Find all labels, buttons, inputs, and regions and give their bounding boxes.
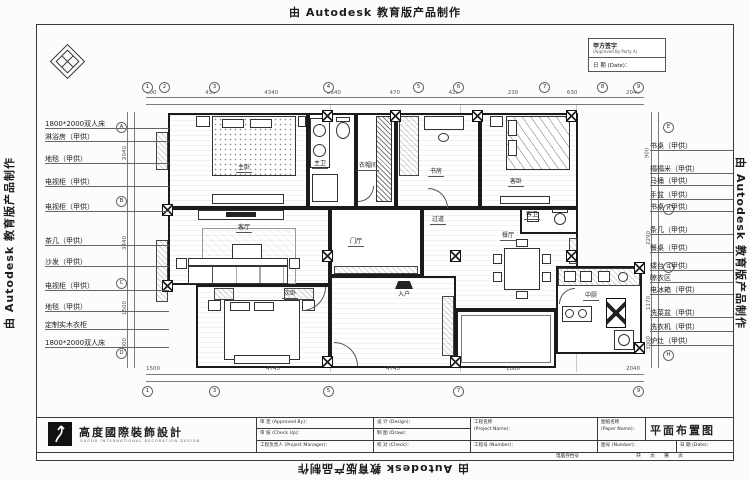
- nightstand: [208, 300, 221, 311]
- axis-bubble: E: [663, 122, 674, 133]
- toilet: [554, 213, 566, 225]
- chair: [493, 254, 502, 264]
- axis-bubble: 3: [209, 82, 220, 93]
- tb-draw: 制 图 (Draw)：: [377, 431, 409, 437]
- signature-box: 甲方签字 (Approved By Party A) 日 期 (Date)：: [588, 38, 666, 72]
- column-marker: [450, 250, 461, 262]
- callout-right: 洗衣机（甲供）: [650, 323, 733, 332]
- callout-left: 1800*2000双人床: [45, 120, 169, 129]
- chair: [542, 272, 551, 282]
- dim-chain-top: [146, 97, 644, 98]
- chair: [516, 291, 528, 299]
- tv-cabinet: [500, 196, 550, 204]
- callout-right: 条几（甲供）: [650, 226, 733, 235]
- room-label: 餐厅: [500, 232, 516, 241]
- titleblock-line: [676, 440, 677, 452]
- counter-unit: [598, 271, 610, 282]
- titleblock-line: [36, 417, 734, 418]
- column-marker: [634, 342, 645, 354]
- callout-left: 电视柜（甲供）: [45, 203, 169, 212]
- axis-bubble: 1: [142, 82, 153, 93]
- chair: [516, 239, 528, 247]
- side-table: [289, 258, 300, 269]
- tb-design: 设 计 (Design)：: [377, 420, 413, 426]
- room-label: 客卧: [508, 178, 524, 187]
- signature-date: 日 期 (Date)：: [593, 61, 630, 69]
- tb-proof: 校 对 (Check)：: [377, 443, 411, 449]
- company-name-en: GAODU INTERNATIONAL DECORATION DESIGN: [80, 439, 200, 443]
- burner: [565, 309, 574, 318]
- sink: [313, 144, 326, 157]
- callout-left: 地毯（甲供）: [45, 303, 169, 312]
- callout-left: 沙发（甲供）: [45, 258, 169, 267]
- room-label: 门厅: [348, 238, 364, 247]
- chair: [438, 133, 449, 142]
- column-marker: [390, 110, 401, 122]
- callout-right: 炉灶（甲供）: [650, 337, 733, 346]
- side-table: [176, 258, 187, 269]
- tb-pages: 共 页 第 页: [636, 454, 685, 460]
- callout-right: 手盆（甲供）: [650, 191, 733, 200]
- logo-stamp: [52, 46, 84, 78]
- axis-bubble: 7: [453, 386, 464, 397]
- tb-paper-no: 图号 (Number)：: [601, 443, 638, 449]
- dim-chain-bottom: [146, 381, 644, 382]
- callout-right: 洗菜盆（甲供）: [650, 309, 733, 318]
- callout-right: 马桶（甲供）: [650, 177, 733, 186]
- column-marker: [566, 250, 577, 262]
- tb-pm: 工程负责人 (Project Manager)：: [260, 443, 330, 449]
- washer-drum: [618, 334, 630, 346]
- dim-chain-top: [146, 104, 644, 105]
- room-label: 过道: [430, 216, 446, 225]
- dining-table: [504, 248, 540, 290]
- pillow: [508, 120, 517, 136]
- room-label: 次卧: [282, 290, 298, 299]
- dim-numbers-top: 500430 43402640 470420 230630 2040: [146, 90, 640, 96]
- counter-unit: [580, 271, 592, 282]
- titleblock-line: [373, 417, 374, 452]
- column-marker: [566, 110, 577, 122]
- bay-window: [156, 240, 168, 302]
- room-label: 中厨: [583, 292, 599, 301]
- titleblock-line: [36, 452, 734, 453]
- axis-bubble: 5: [413, 82, 424, 93]
- desk: [424, 116, 464, 130]
- company-name: 高度國際裝飾設計: [79, 424, 183, 440]
- titleblock-line: [470, 417, 471, 452]
- room-label: 客卫: [524, 211, 540, 220]
- callout-right: 榻榻米（甲供）: [650, 165, 733, 174]
- callout-left: 1800*2000双人床: [45, 339, 169, 348]
- counter-unit: [564, 271, 576, 282]
- company-logo: [48, 422, 72, 446]
- room-label: 书房: [428, 168, 444, 177]
- pillow: [230, 302, 250, 311]
- titleblock-line: [256, 428, 470, 429]
- tv-cabinet: [234, 355, 290, 364]
- coffee-table: [232, 244, 262, 259]
- bookshelf: [399, 116, 419, 176]
- tb-project-name: 工程名称: [474, 420, 492, 426]
- shower: [312, 174, 338, 202]
- toilet-tank: [336, 117, 350, 122]
- axis-bubble: D: [116, 348, 127, 359]
- burner: [578, 309, 587, 318]
- sofa-back: [188, 258, 288, 266]
- axis-bubble: 6: [453, 82, 464, 93]
- callout-right: 书桌（甲供）: [650, 142, 733, 151]
- watermark-left: 由 Autodesk 教育版产品制作: [1, 157, 17, 329]
- chair: [542, 254, 551, 264]
- wardrobe-shelves: [376, 116, 392, 202]
- titleblock-line: [645, 417, 646, 440]
- dim-number-right: 1170: [646, 296, 652, 310]
- axis-bubble: 8: [597, 82, 608, 93]
- callout-right: 餐桌（甲供）: [650, 244, 733, 253]
- room-balcony: [456, 310, 556, 368]
- sink: [313, 124, 326, 137]
- nightstand: [298, 116, 306, 127]
- pillow: [250, 119, 272, 128]
- callout-left: 电视柜（甲供）: [45, 178, 169, 187]
- column-marker: [322, 250, 333, 262]
- shoe-cabinet: [334, 266, 418, 274]
- dim-numbers-bottom: 15004745 47451080 2040: [146, 366, 640, 372]
- callout-right: 晾衣区: [650, 274, 733, 283]
- room-label: 入户: [396, 291, 412, 299]
- chair: [493, 272, 502, 282]
- watermark-right: 由 Autodesk 教育版产品制作: [733, 157, 749, 329]
- room-label: 客厅: [236, 224, 252, 233]
- axis-bubble: 9: [633, 386, 644, 397]
- tb-paper-name-en: (Paper Name)：: [601, 427, 637, 433]
- axis-bubble: 7: [539, 82, 550, 93]
- drawing-title: 平面布置图: [650, 422, 715, 438]
- callout-left: 茶几（甲供）: [45, 237, 169, 246]
- titleblock-line: [256, 440, 734, 441]
- fridge: [606, 298, 626, 328]
- tb-archive: 电脑存档号: [556, 454, 579, 460]
- nightstand: [490, 116, 503, 127]
- tb-check: 审 核 (Check Up)：: [260, 431, 302, 437]
- titleblock-line: [256, 417, 257, 452]
- drawing-sheet: 由 Autodesk 教育版产品制作 由 Autodesk 教育版产品制作 由 …: [0, 0, 750, 480]
- column-marker: [634, 262, 645, 274]
- callout-left: 定制实木衣柜: [45, 321, 169, 330]
- callout-right: 电冰箱（甲供）: [650, 286, 733, 295]
- tb-paper-name: 图纸名称: [601, 420, 619, 426]
- tb-date: 日 期 (Date)：: [680, 443, 711, 449]
- axis-bubble: 1: [142, 386, 153, 397]
- dim-chain-bottom: [146, 374, 644, 375]
- callout-left: 电视柜（甲供）: [45, 282, 169, 291]
- tb-approved: 审 定 (Approved By)：: [260, 420, 310, 426]
- axis-bubble: H: [663, 350, 674, 361]
- axis-bubble: 3: [209, 386, 220, 397]
- axis-bubble: 5: [323, 386, 334, 397]
- sofa: [188, 266, 288, 284]
- axis-bubble: 4: [323, 82, 334, 93]
- callout-left: 淋浴房（甲供）: [45, 133, 169, 142]
- callout-left: 地毯（甲供）: [45, 155, 169, 164]
- pillow: [254, 302, 274, 311]
- watermark-bottom: 由 Autodesk 教育版产品制作: [297, 461, 469, 477]
- column-marker: [472, 110, 483, 122]
- toilet: [336, 122, 350, 139]
- kitchen-sink: [618, 272, 628, 282]
- callout-right: 矮台（甲供）: [650, 262, 733, 271]
- tv-cabinet: [212, 194, 284, 204]
- room-label: 衣帽间: [357, 162, 379, 171]
- tv: [226, 212, 256, 217]
- tb-project-no: 工程号 (Number)：: [474, 443, 516, 449]
- callout-right: 书桌（甲供）: [650, 203, 733, 212]
- tall-cabinet: [442, 296, 454, 356]
- column-marker: [322, 110, 333, 122]
- axis-bubble: 2: [159, 82, 170, 93]
- signature-label-en: (Approved By Party A): [593, 49, 637, 54]
- pillow: [222, 119, 244, 128]
- titleblock-line: [597, 417, 598, 452]
- watermark-top: 由 Autodesk 教育版产品制作: [289, 4, 461, 20]
- pillow: [508, 140, 517, 156]
- axis-bubble: 9: [633, 82, 644, 93]
- nightstand: [196, 116, 210, 127]
- tb-project-name-en: (Project Name)：: [474, 427, 513, 433]
- room-label: 主卧: [236, 164, 252, 173]
- wardrobe: [214, 288, 234, 300]
- room-label: 主卫: [312, 160, 328, 169]
- toilet-tank: [552, 209, 568, 213]
